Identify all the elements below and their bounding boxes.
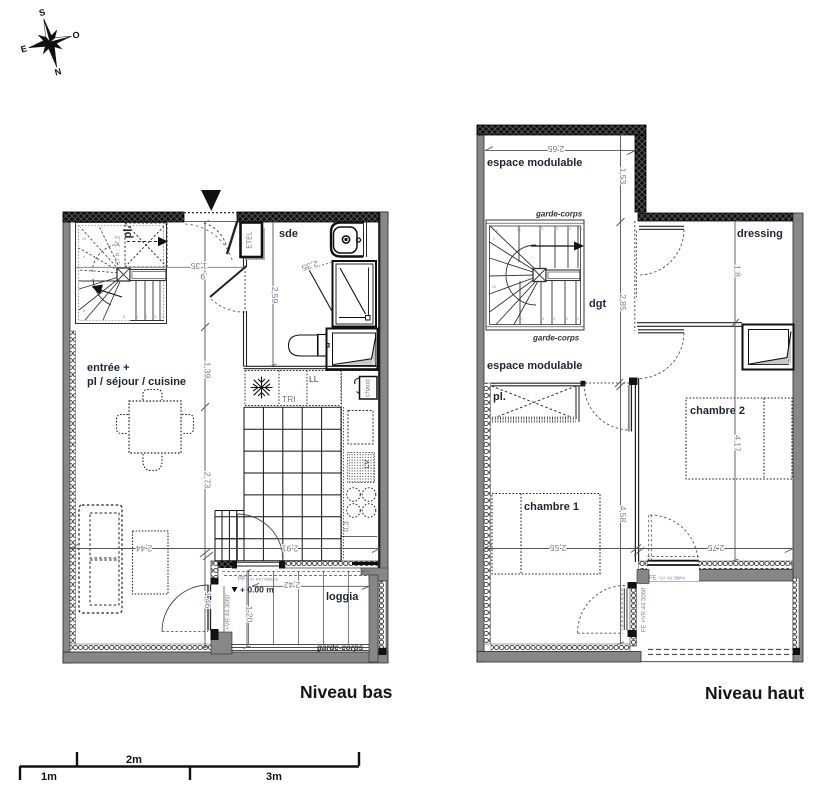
svg-text:LL: LL <box>309 374 319 384</box>
svg-text:garde-corps: garde-corps <box>535 210 583 219</box>
svg-text:2m: 2m <box>126 754 142 766</box>
svg-text:pl.: pl. <box>493 391 506 403</box>
svg-text:2,44: 2,44 <box>135 544 152 554</box>
svg-text:PF +VR 44 3060: PF +VR 44 3060 <box>226 594 232 639</box>
svg-text:sde: sde <box>279 228 298 240</box>
svg-text:4,58: 4,58 <box>618 506 628 523</box>
svg-text:2,55: 2,55 <box>549 543 566 553</box>
svg-text:espace modulable: espace modulable <box>487 157 582 169</box>
svg-text:garde-corps: garde-corps <box>532 334 580 343</box>
svg-text:Niveau bas: Niveau bas <box>300 682 393 702</box>
svg-text:1,8: 1,8 <box>733 265 743 277</box>
svg-text:4,17: 4,17 <box>733 435 743 452</box>
svg-text:2,73: 2,73 <box>203 472 213 489</box>
svg-text:espace modulable: espace modulable <box>487 360 582 372</box>
svg-text:TRI: TRI <box>282 394 296 404</box>
svg-text:dressing: dressing <box>737 228 783 240</box>
svg-text:1m: 1m <box>41 771 57 783</box>
svg-text:12: 12 <box>539 226 544 231</box>
svg-text:10: 10 <box>82 236 87 241</box>
svg-text:FE +VR 44 3060: FE +VR 44 3060 <box>642 587 648 632</box>
svg-text:1,46: 1,46 <box>203 592 213 609</box>
svg-text:LV: LV <box>362 460 371 469</box>
svg-text:2,59: 2,59 <box>270 287 280 304</box>
svg-text:ETEL: ETEL <box>247 231 254 249</box>
svg-text:2,65: 2,65 <box>547 144 564 154</box>
svg-text:2,91: 2,91 <box>281 544 298 554</box>
svg-text:1,35: 1,35 <box>190 261 207 271</box>
svg-text:2,75: 2,75 <box>707 543 724 553</box>
svg-text:10: 10 <box>492 284 497 289</box>
svg-text:entrée +: entrée + <box>87 362 130 374</box>
svg-text:Niveau haut: Niveau haut <box>705 683 804 703</box>
svg-text:chaud: chaud <box>365 379 372 397</box>
svg-text:0.3: 0.3 <box>342 521 351 531</box>
svg-text:chambre 1: chambre 1 <box>524 501 579 513</box>
svg-text:1,39: 1,39 <box>203 362 213 379</box>
svg-text:dgt: dgt <box>589 298 606 310</box>
svg-text:chambre 2: chambre 2 <box>690 405 745 417</box>
svg-text:.9: .9 <box>200 272 207 282</box>
svg-text:13: 13 <box>554 226 559 231</box>
svg-text:17 h : 17.2: 17 h : 17.2 <box>116 235 122 264</box>
svg-text:pl.: pl. <box>122 226 134 239</box>
svg-text:garde-corps: garde-corps <box>316 643 364 652</box>
svg-text:3m: 3m <box>266 771 282 783</box>
svg-text:1,20: 1,20 <box>245 606 255 623</box>
svg-text:1,53: 1,53 <box>618 168 628 185</box>
svg-text:15: 15 <box>578 226 583 231</box>
svg-text:loggia: loggia <box>326 591 359 603</box>
svg-text:2,85: 2,85 <box>618 294 628 311</box>
svg-text:pl / séjour / cuisine: pl / séjour / cuisine <box>87 376 186 388</box>
svg-text:2,42: 2,42 <box>283 580 300 590</box>
svg-text:14: 14 <box>567 226 572 231</box>
